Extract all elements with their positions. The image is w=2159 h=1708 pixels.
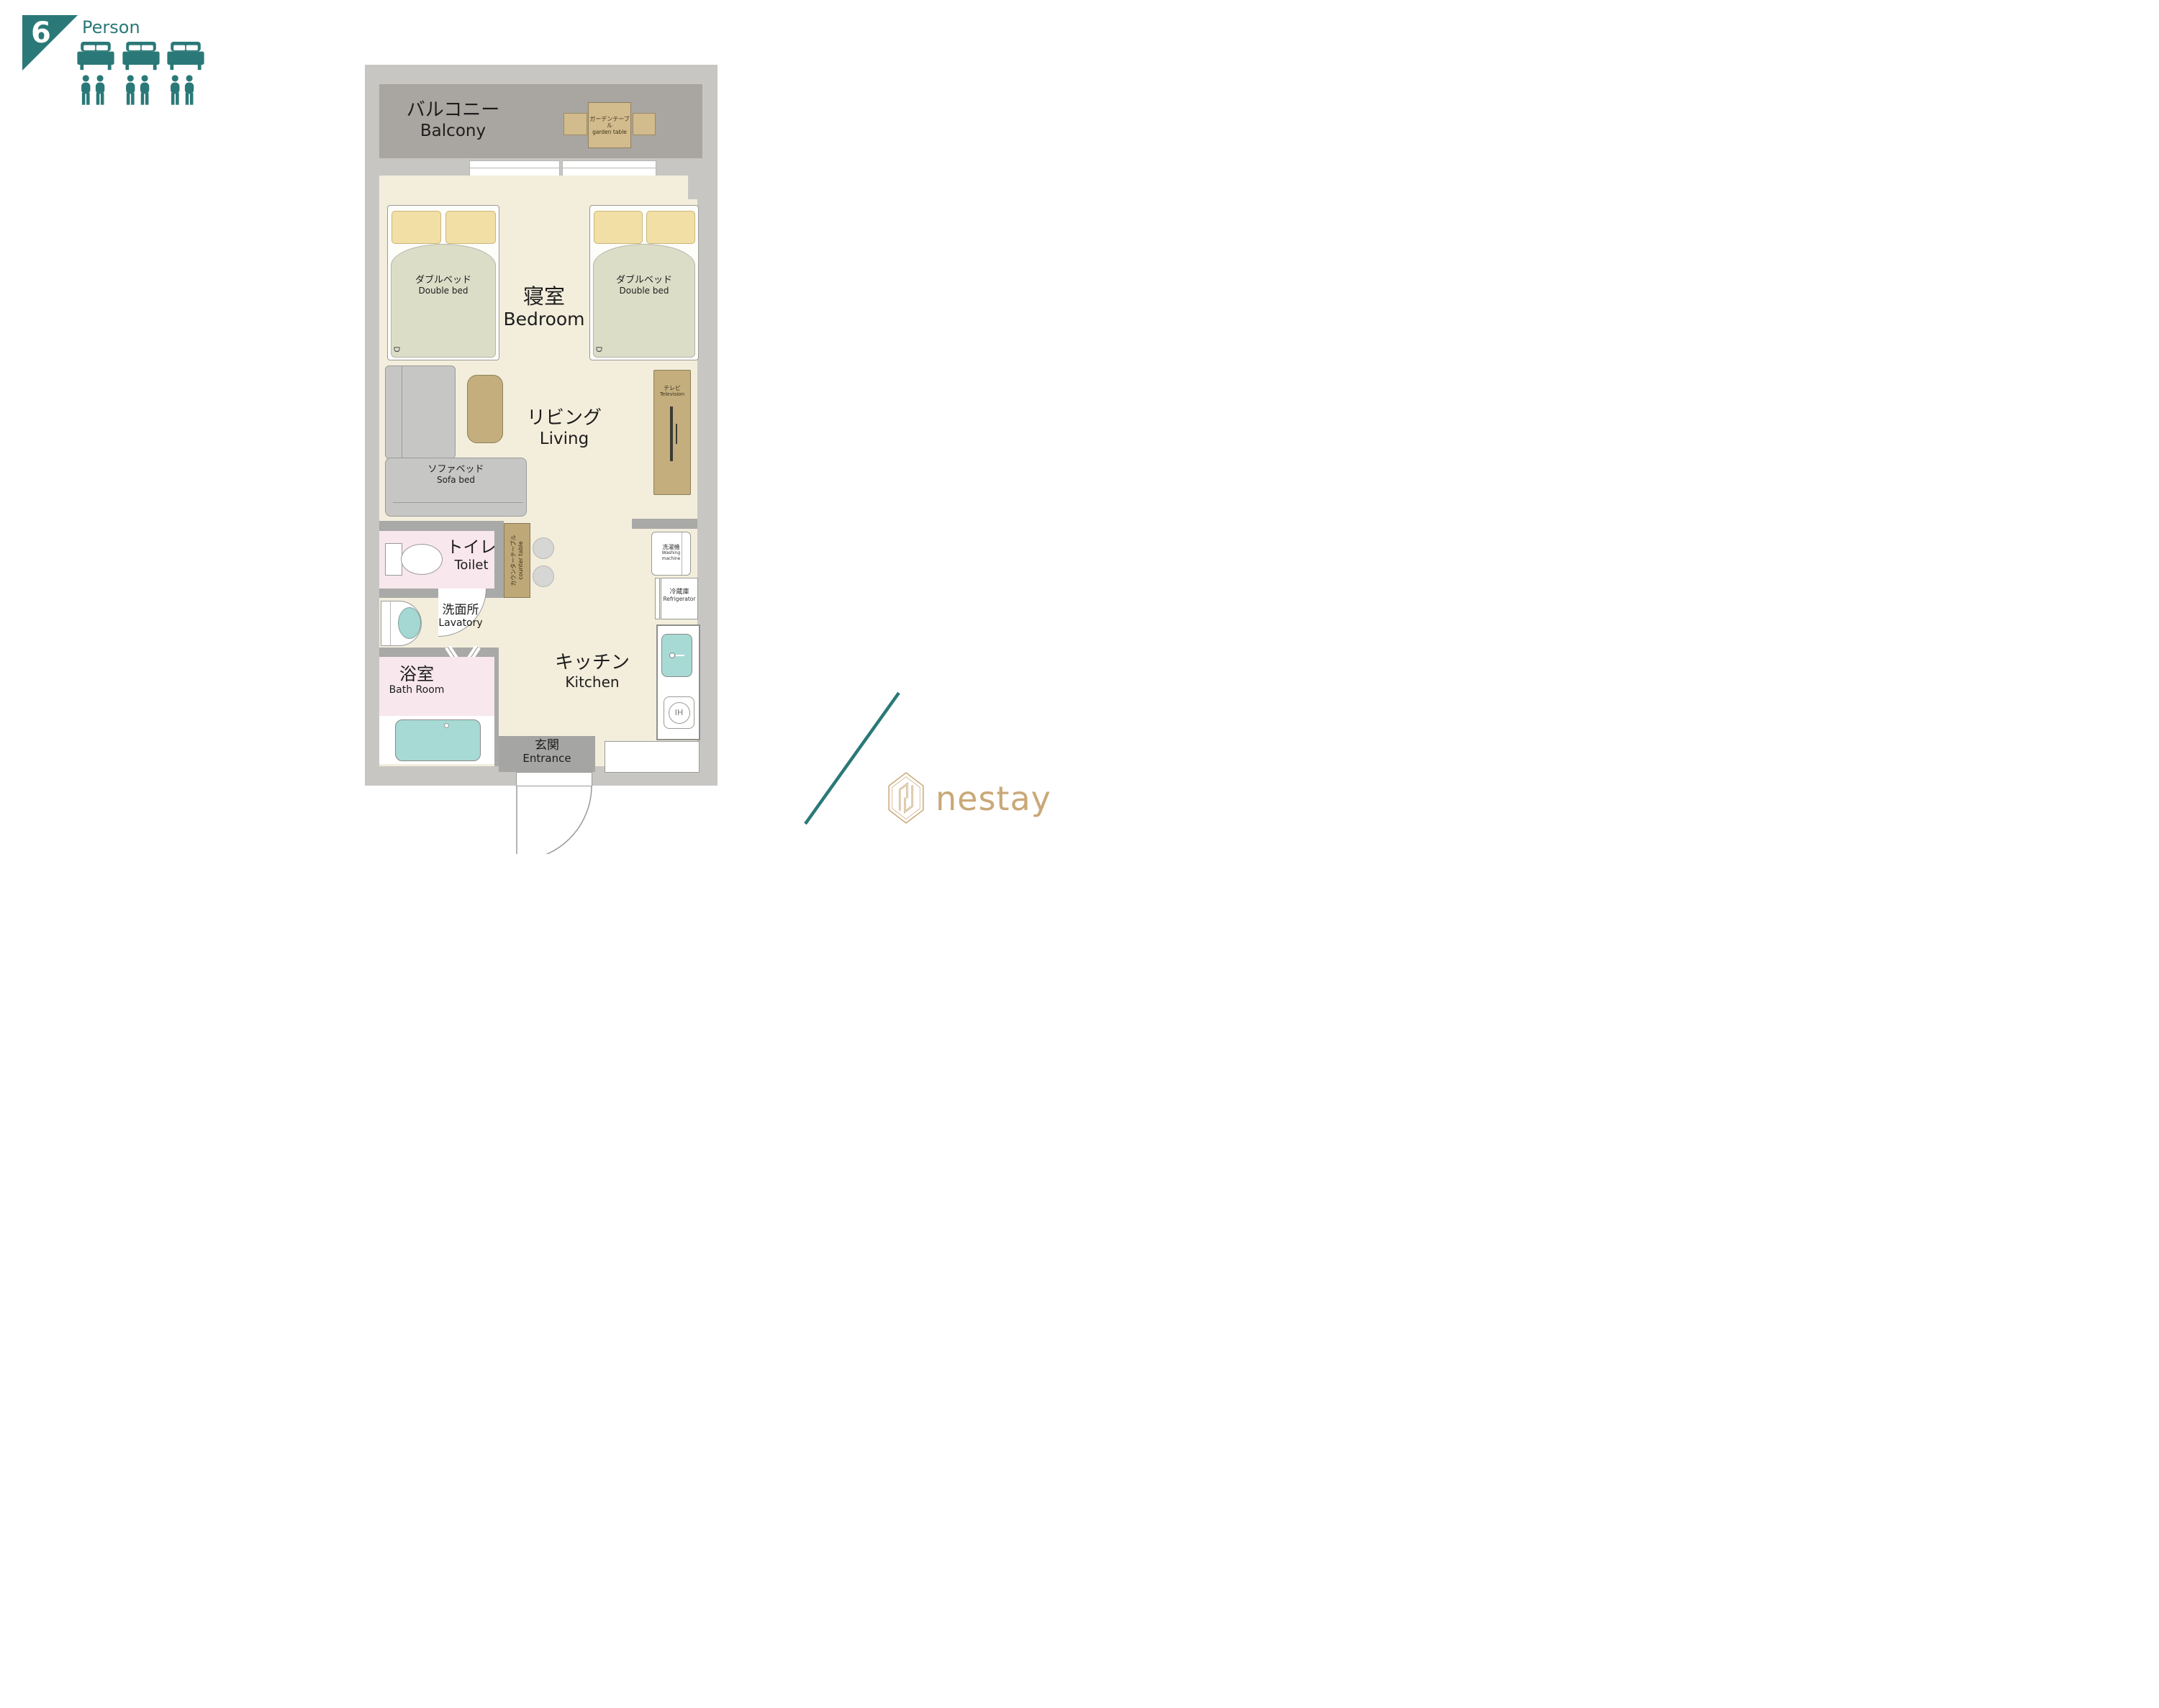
wall-segment <box>379 521 504 531</box>
double-bed-label: ダブルベッド Double bed <box>388 275 499 296</box>
washing-machine: 洗濯機 Washing machine <box>651 532 691 576</box>
pillow <box>646 211 695 244</box>
double-bed-icon <box>166 42 205 71</box>
coffee-table <box>467 375 503 443</box>
faucet-arm <box>676 655 684 656</box>
occupancy-person-label: Person <box>82 17 140 37</box>
lavatory-basin <box>398 607 421 639</box>
wall-segment <box>632 519 697 529</box>
counter-table-label: カウンターテーブル counter table <box>510 535 525 586</box>
drain <box>444 723 449 728</box>
window <box>562 160 656 177</box>
kitchen-sink <box>661 634 692 677</box>
entrance-door-swing <box>512 784 596 854</box>
refrigerator: 冷蔵庫 Refrigerator <box>661 578 698 619</box>
bedroom-label: 寝室 Bedroom <box>486 284 602 330</box>
nestay-logo-icon <box>886 771 926 825</box>
toilet-tank <box>385 543 402 576</box>
garden-table-label: ガーデンテーブル garden table <box>589 116 630 136</box>
lavatory-label: 洗面所 Lavatory <box>424 603 497 630</box>
double-bed-icon <box>76 42 115 71</box>
washing-machine-label: 洗濯機 Washing machine <box>652 544 690 561</box>
ih-stove: IH <box>664 696 694 729</box>
balcony-label: バルコニー Balcony <box>386 99 520 141</box>
toilet-label: トイレ Toilet <box>435 538 507 573</box>
living-label: リビング Living <box>514 407 615 449</box>
sofa-bed: ソファベッド Sofa bed <box>385 458 527 517</box>
occupancy-count: 6 <box>31 17 51 50</box>
garden-chair <box>563 113 587 135</box>
counter-table: カウンターテーブル counter table <box>504 523 530 598</box>
double-bed-left: ダブルベッド Double bed D <box>387 205 499 360</box>
double-bed-icon <box>122 42 160 71</box>
wall-notch <box>688 176 697 199</box>
bath-label: 浴室 Bath Room <box>374 664 460 696</box>
faucet-icon <box>669 653 675 658</box>
double-bed-label: ダブルベッド Double bed <box>590 275 698 296</box>
pillow <box>445 211 496 244</box>
tv-screen-line <box>676 424 677 444</box>
brand-name: nestay <box>936 779 1051 818</box>
pillow <box>391 211 442 244</box>
garden-chair <box>633 113 656 135</box>
double-bed-right: ダブルベッド Double bed D <box>589 205 699 360</box>
floor-plan: バルコニー Balcony ガーデンテーブル garden table <box>365 65 718 786</box>
sofa-bed-label: ソファベッド Sofa bed <box>386 464 526 485</box>
bed-mark: D <box>392 346 402 352</box>
blanket <box>391 244 496 358</box>
floorplan-page: 6 Person バルコニー Balcony ガーデンテーブル garden t… <box>0 0 1079 854</box>
person-pair-icon <box>169 73 196 106</box>
television-cabinet: テレビ Television <box>653 370 691 495</box>
bathtub <box>395 719 481 761</box>
person-pair-icon <box>125 73 152 106</box>
person-pair-icon <box>80 73 107 106</box>
stool <box>533 565 554 587</box>
ih-stove-label: IH <box>669 702 690 724</box>
bed-mark: D <box>594 346 604 352</box>
television-label: テレビ Television <box>654 385 690 398</box>
entrance-area: 玄関 Entrance <box>499 736 595 772</box>
kitchen-counter: IH <box>656 624 700 740</box>
entrance-label: 玄関 Entrance <box>499 738 595 766</box>
refrigerator-door-bar <box>655 578 660 619</box>
kitchen-label: キッチン Kitchen <box>542 652 643 691</box>
window <box>469 160 560 177</box>
sofa-back <box>385 365 456 459</box>
refrigerator-label: 冷蔵庫 Refrigerator <box>661 589 697 602</box>
garden-table: ガーデンテーブル garden table <box>588 102 631 148</box>
tv-screen <box>670 406 673 461</box>
stool <box>533 537 554 559</box>
shoe-cabinet <box>605 741 700 773</box>
occupancy-triangle: 6 <box>22 15 78 71</box>
pillow <box>594 211 643 244</box>
blanket <box>593 244 695 358</box>
